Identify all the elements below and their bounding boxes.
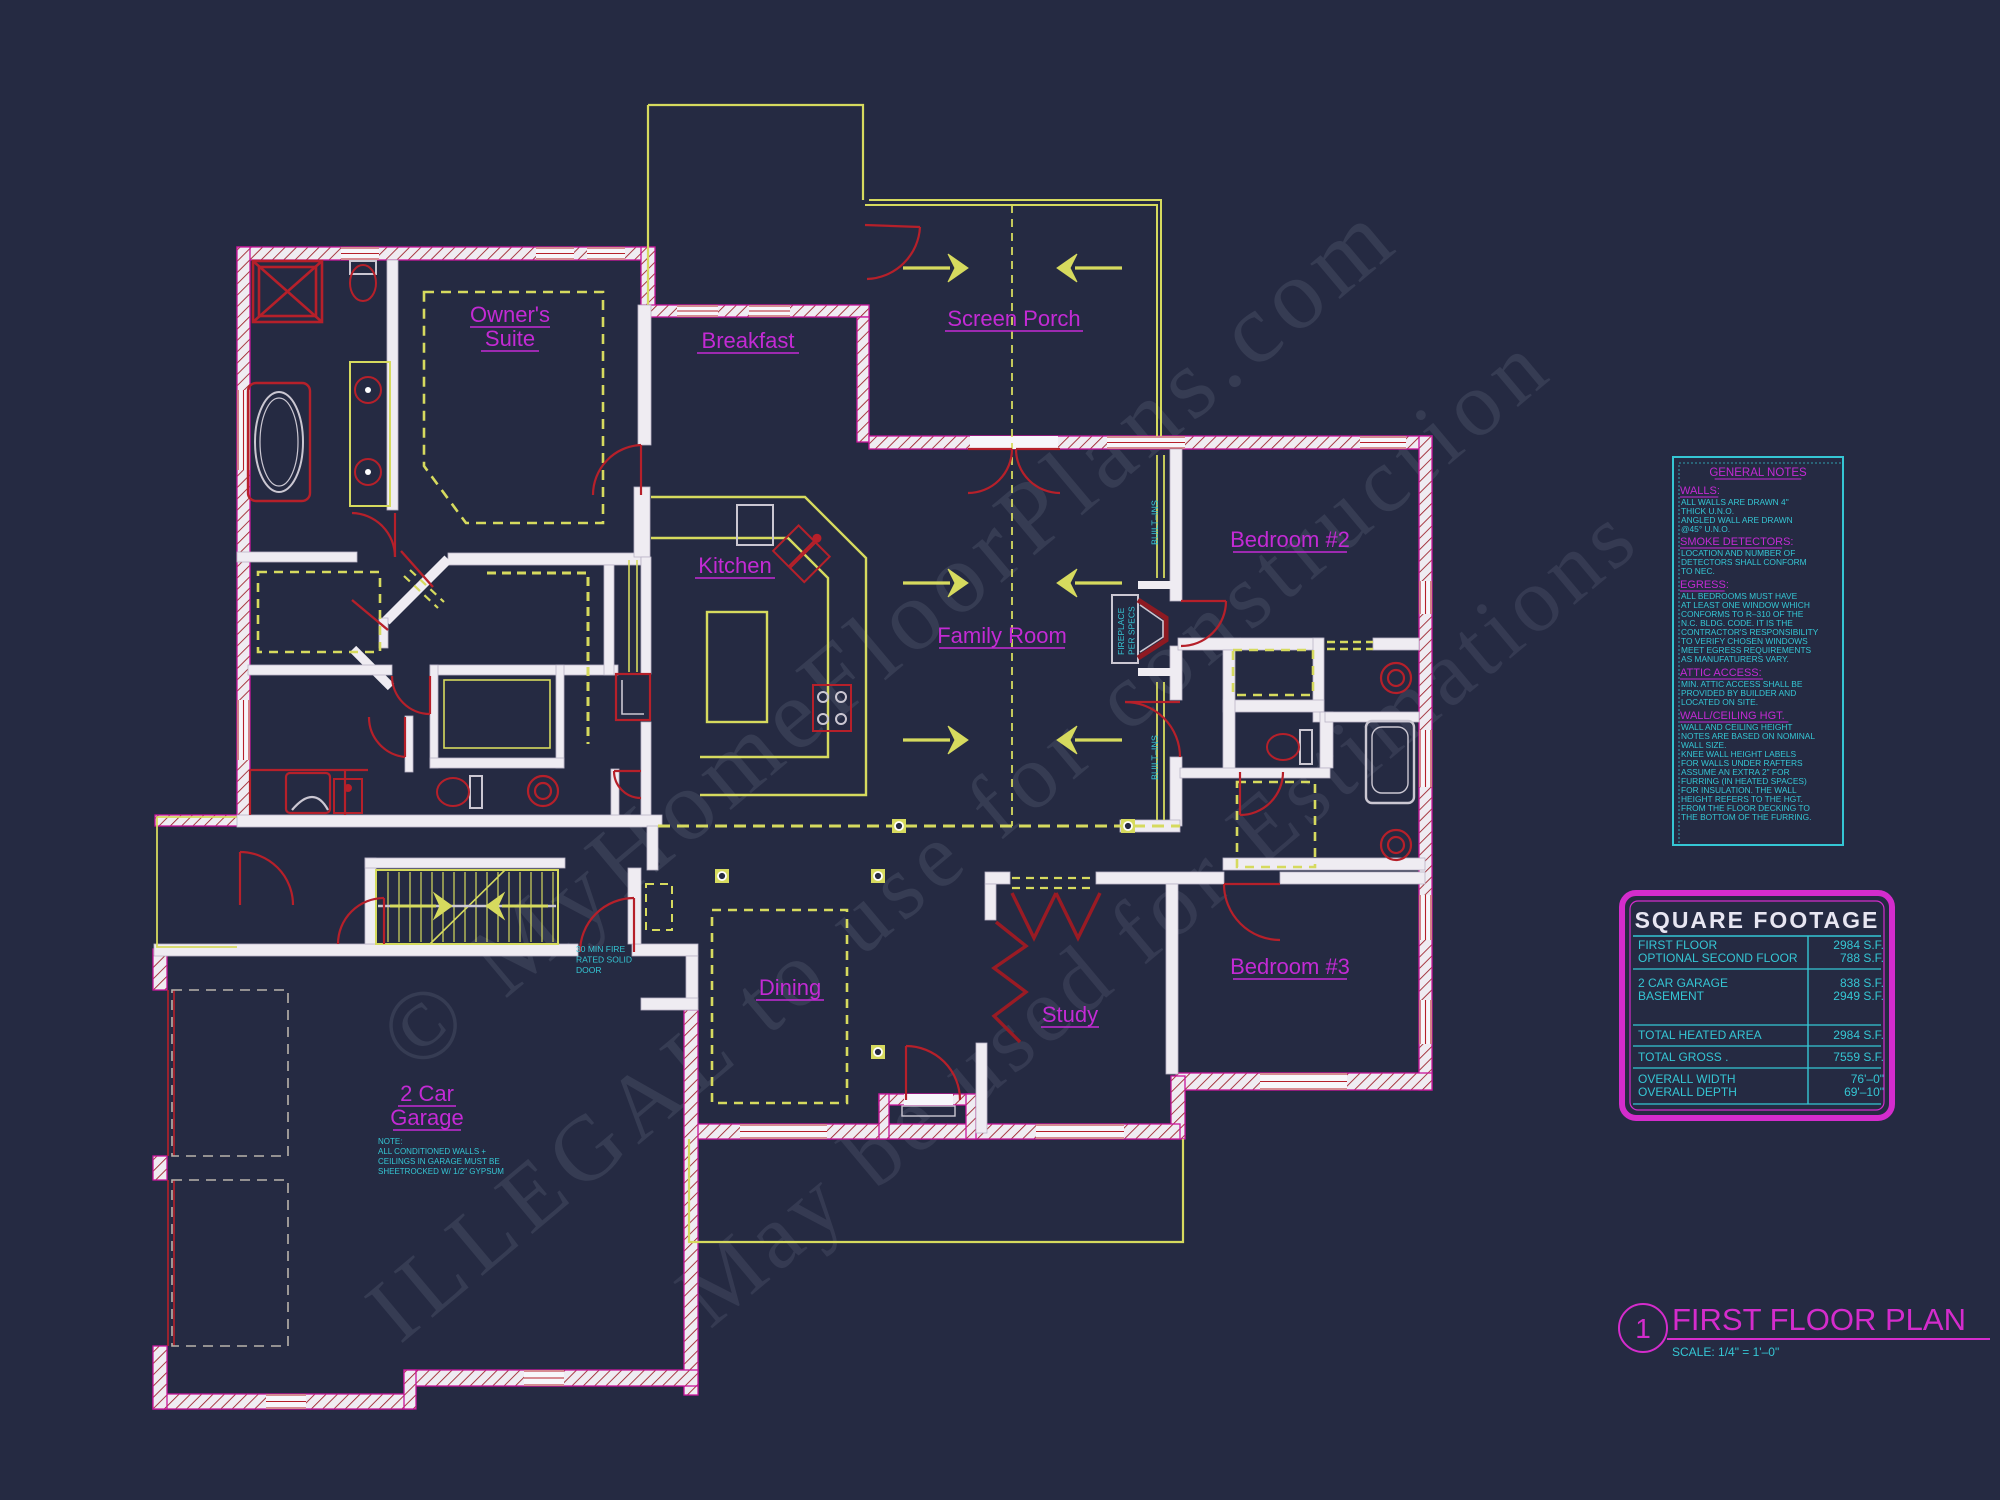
svg-text:FIRST FLOOR: FIRST FLOOR [1638, 938, 1717, 952]
svg-text:Screen Porch: Screen Porch [947, 306, 1080, 331]
svg-text:ATTIC ACCESS:: ATTIC ACCESS: [1680, 667, 1762, 679]
svg-text:@45° U.N.O.: @45° U.N.O. [1681, 524, 1730, 534]
svg-text:TOTAL HEATED AREA: TOTAL HEATED AREA [1638, 1028, 1762, 1042]
svg-text:76'–0": 76'–0" [1851, 1072, 1884, 1086]
svg-text:SCALE: 1/4" = 1'–0": SCALE: 1/4" = 1'–0" [1672, 1345, 1779, 1359]
svg-text:FIREPLACEPER SPECS: FIREPLACEPER SPECS [1116, 606, 1137, 655]
svg-text:OPTIONAL SECOND FLOOR: OPTIONAL SECOND FLOOR [1638, 951, 1798, 965]
svg-text:2984 S.F.: 2984 S.F. [1833, 1028, 1884, 1042]
svg-text:THE BOTTOM OF THE FURRING.: THE BOTTOM OF THE FURRING. [1681, 812, 1811, 822]
svg-text:Family Room: Family Room [937, 623, 1067, 648]
svg-text:2 CAR GARAGE: 2 CAR GARAGE [1638, 976, 1728, 990]
svg-text:BASEMENT: BASEMENT [1638, 989, 1705, 1003]
svg-text:Bedroom #2: Bedroom #2 [1230, 527, 1350, 552]
svg-text:Dining: Dining [759, 975, 821, 1000]
svg-text:2984 S.F.: 2984 S.F. [1833, 938, 1884, 952]
svg-text:Bedroom #3: Bedroom #3 [1230, 954, 1350, 979]
svg-text:EGRESS:: EGRESS: [1680, 579, 1729, 591]
svg-text:2949 S.F.: 2949 S.F. [1833, 989, 1884, 1003]
svg-text:TO NEC.: TO NEC. [1681, 566, 1715, 576]
svg-text:FIRST FLOOR PLAN: FIRST FLOOR PLAN [1672, 1302, 1966, 1337]
svg-text:2 Car: 2 Car [400, 1081, 454, 1106]
svg-text:TOTAL GROSS .: TOTAL GROSS . [1638, 1050, 1728, 1064]
svg-text:BUILT–INS: BUILT–INS [1150, 500, 1160, 545]
svg-text:1: 1 [1635, 1313, 1651, 1344]
svg-text:Study: Study [1042, 1002, 1098, 1027]
svg-text:SMOKE DETECTORS:: SMOKE DETECTORS: [1680, 536, 1793, 548]
svg-text:BUILT–INS: BUILT–INS [1150, 735, 1160, 780]
svg-text:OVERALL WIDTH: OVERALL WIDTH [1638, 1072, 1736, 1086]
svg-text:7559 S.F.: 7559 S.F. [1833, 1050, 1884, 1064]
svg-text:Breakfast: Breakfast [702, 328, 795, 353]
svg-text:69'–10": 69'–10" [1844, 1085, 1884, 1099]
svg-text:AS MANUFATURERS VARY.: AS MANUFATURERS VARY. [1681, 654, 1789, 664]
svg-text:788 S.F.: 788 S.F. [1840, 951, 1884, 965]
svg-text:Owner's: Owner's [470, 302, 550, 327]
svg-text:WALL/CEILING HGT.: WALL/CEILING HGT. [1680, 710, 1785, 722]
svg-text:Suite: Suite [485, 326, 535, 351]
svg-text:WALLS:: WALLS: [1680, 485, 1720, 497]
svg-text:LOCATED ON SITE.: LOCATED ON SITE. [1681, 697, 1758, 707]
svg-text:OVERALL DEPTH: OVERALL DEPTH [1638, 1085, 1737, 1099]
svg-text:838 S.F.: 838 S.F. [1840, 976, 1884, 990]
svg-text:GENERAL NOTES: GENERAL NOTES [1709, 467, 1807, 479]
svg-text:Garage: Garage [390, 1105, 463, 1130]
svg-text:Kitchen: Kitchen [698, 553, 771, 578]
svg-text:SQUARE FOOTAGE: SQUARE FOOTAGE [1635, 907, 1880, 933]
